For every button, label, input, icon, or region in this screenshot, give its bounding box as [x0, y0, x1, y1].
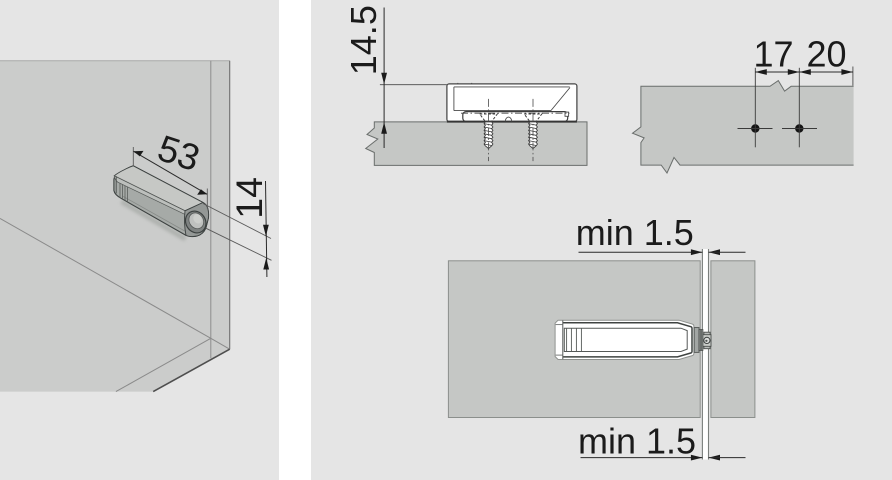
- svg-text:14: 14: [228, 177, 270, 219]
- svg-text:14.5: 14.5: [343, 5, 384, 75]
- svg-text:min 1.5: min 1.5: [576, 212, 694, 253]
- svg-text:20: 20: [806, 33, 846, 74]
- svg-text:min 1.5: min 1.5: [578, 420, 696, 461]
- svg-text:17: 17: [753, 33, 793, 74]
